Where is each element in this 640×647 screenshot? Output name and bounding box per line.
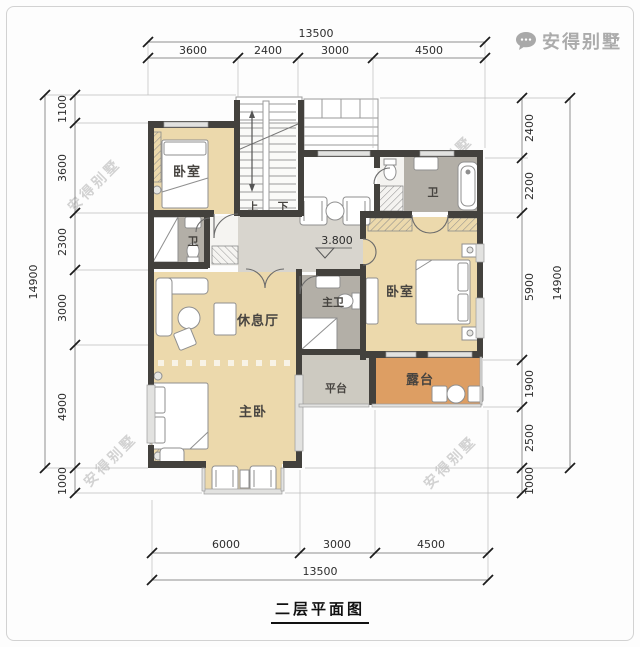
dim-left-seg-1: 3600 [56, 154, 69, 182]
room-label-master-bedroom: 主卧 [239, 404, 267, 420]
dim-top-seg-1: 2400 [254, 44, 282, 57]
dim-top-seg-2: 3000 [321, 44, 349, 57]
room-label-bath-top-right: 卫 [428, 186, 439, 199]
dim-left-seg-3: 3000 [56, 294, 69, 322]
dim-top-seg-3: 4500 [415, 44, 443, 57]
dim-left-seg-4: 4900 [56, 393, 69, 421]
dim-left-seg-2: 2300 [56, 228, 69, 256]
dim-right-total: 14900 [551, 266, 564, 301]
dim-left-seg-5: 1000 [56, 467, 69, 495]
stair-down-label: 下 [278, 201, 289, 213]
dim-bottom-seg-1: 3000 [323, 538, 351, 551]
room-label-master-bath: 主卫 [322, 295, 344, 309]
level-annotation: 3.800 [321, 234, 353, 247]
dim-bottom-seg-0: 6000 [212, 538, 240, 551]
terrace-table-icon [432, 385, 483, 403]
bay-chairs-icon [212, 466, 276, 491]
room-label-bedroom-right: 卧室 [386, 284, 414, 300]
room-label-terrace: 露台 [406, 372, 434, 388]
dim-right-seg-0: 2400 [523, 114, 536, 142]
dim-top-total: 13500 [299, 27, 334, 40]
room-label-lounge: 休息厅 [236, 313, 279, 329]
dim-bottom-total: 13500 [303, 565, 338, 578]
dim-right-seg-2: 5900 [523, 273, 536, 301]
stair-up-label: 上 [248, 200, 259, 213]
room-label-bath-top-left: 卫 [188, 235, 199, 248]
room-label-bedroom-top-left: 卧室 [173, 164, 201, 180]
room-label-platform: 平台 [325, 381, 347, 395]
dim-right-seg-4: 2500 [523, 424, 536, 452]
dim-right-seg-1: 2200 [523, 172, 536, 200]
floor-plan-canvas: 3.800 卧室 卫 卫 休息厅 主卧 主卫 卧室 平台 露台 上 下 [0, 0, 640, 647]
dim-top-seg-0: 3600 [179, 44, 207, 57]
dim-right-seg-5: 1000 [523, 467, 536, 495]
floor-plan-sheet: 安得别墅 安得别墅 安得别墅 安得别墅 安得别墅 安得别墅 [0, 0, 640, 647]
dim-right-seg-3: 1900 [523, 370, 536, 398]
dim-bottom-seg-2: 4500 [417, 538, 445, 551]
skylight-grid [304, 99, 378, 152]
drawing-title: 二层平面图 [271, 598, 369, 624]
dim-left-seg-0: 1100 [56, 95, 69, 123]
dim-left-total: 14900 [27, 265, 40, 300]
master-bed-icon [152, 372, 208, 460]
